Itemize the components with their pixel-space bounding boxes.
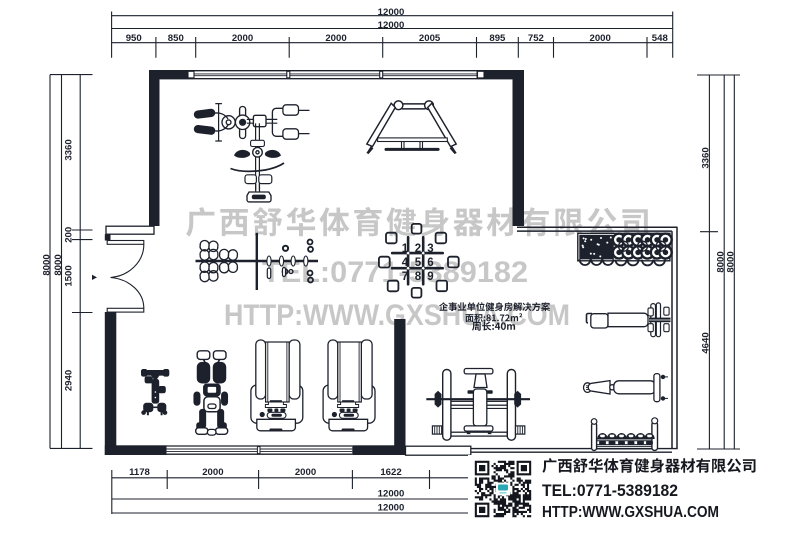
svg-text:8000: 8000 [42, 254, 53, 275]
svg-text:4640: 4640 [701, 332, 712, 353]
svg-text:8: 8 [415, 271, 422, 283]
svg-text:2005: 2005 [419, 33, 441, 44]
svg-text:2000: 2000 [202, 467, 223, 478]
svg-text:9: 9 [427, 271, 433, 283]
svg-text:12000: 12000 [378, 20, 405, 31]
svg-text:1622: 1622 [380, 467, 401, 478]
svg-text:4: 4 [402, 257, 409, 269]
svg-text:2000: 2000 [590, 33, 611, 44]
svg-text:1178: 1178 [129, 467, 150, 478]
svg-text:12000: 12000 [378, 503, 405, 514]
svg-text:3360: 3360 [701, 147, 712, 168]
svg-text:895: 895 [489, 33, 506, 44]
svg-text:8000: 8000 [53, 254, 64, 275]
svg-text:950: 950 [126, 33, 142, 44]
svg-text:12000: 12000 [378, 7, 405, 18]
svg-text:1: 1 [402, 243, 409, 255]
svg-text:548: 548 [652, 33, 669, 44]
svg-text:1500: 1500 [64, 265, 75, 286]
svg-text:2: 2 [415, 243, 421, 255]
svg-text:2000: 2000 [295, 467, 316, 478]
svg-text:5: 5 [415, 257, 422, 269]
svg-text:2000: 2000 [232, 33, 253, 44]
svg-text:TEL:0771-5389182: TEL:0771-5389182 [542, 481, 678, 500]
svg-text:8000: 8000 [726, 251, 737, 272]
svg-text:7: 7 [402, 271, 408, 283]
svg-text:3360: 3360 [64, 139, 75, 160]
svg-text:850: 850 [168, 33, 184, 44]
svg-text:HTTP:WWW.GXSHUA.COM: HTTP:WWW.GXSHUA.COM [542, 504, 719, 521]
svg-text:200: 200 [64, 227, 75, 243]
svg-text:2940: 2940 [64, 370, 75, 391]
svg-text:3: 3 [427, 243, 433, 255]
svg-text:2000: 2000 [325, 33, 346, 44]
svg-text:6: 6 [427, 257, 433, 269]
svg-text:752: 752 [528, 33, 544, 44]
svg-text:12000: 12000 [378, 489, 405, 500]
